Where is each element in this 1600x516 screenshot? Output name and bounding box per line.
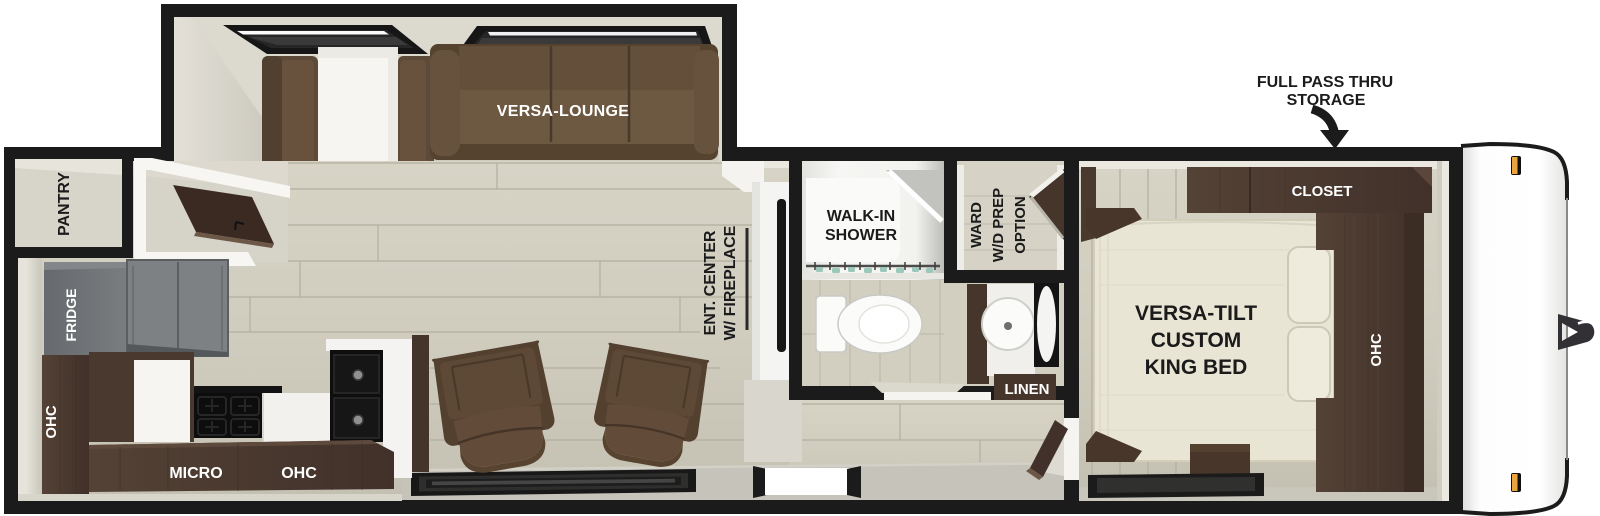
svg-text:CUSTOM: CUSTOM [1151,329,1242,352]
svg-text:OHC: OHC [281,465,317,482]
svg-text:VERSA-LOUNGE: VERSA-LOUNGE [497,103,630,120]
svg-text:FULL PASS THRU: FULL PASS THRU [1257,74,1393,91]
svg-text:VERSA-TILT: VERSA-TILT [1135,302,1257,325]
svg-text:KING BED: KING BED [1145,356,1248,379]
svg-text:ENT. CENTER: ENT. CENTER [702,230,719,335]
svg-text:STORAGE: STORAGE [1287,92,1366,109]
svg-text:WARD: WARD [968,202,985,248]
svg-text:SHOWER: SHOWER [825,227,897,244]
svg-text:PANTRY: PANTRY [56,172,73,236]
svg-text:OHC: OHC [1368,333,1385,367]
svg-text:MICRO: MICRO [169,465,222,482]
svg-text:LINEN: LINEN [1005,381,1050,398]
svg-text:CLOSET: CLOSET [1292,183,1353,200]
svg-text:WALK-IN: WALK-IN [827,208,895,225]
svg-text:W/ FIREPLACE: W/ FIREPLACE [722,225,739,340]
svg-text:FRIDGE: FRIDGE [63,289,79,342]
svg-text:OHC: OHC [43,405,60,439]
svg-text:W/D PREP: W/D PREP [990,188,1007,262]
svg-text:OPTION: OPTION [1012,196,1029,254]
